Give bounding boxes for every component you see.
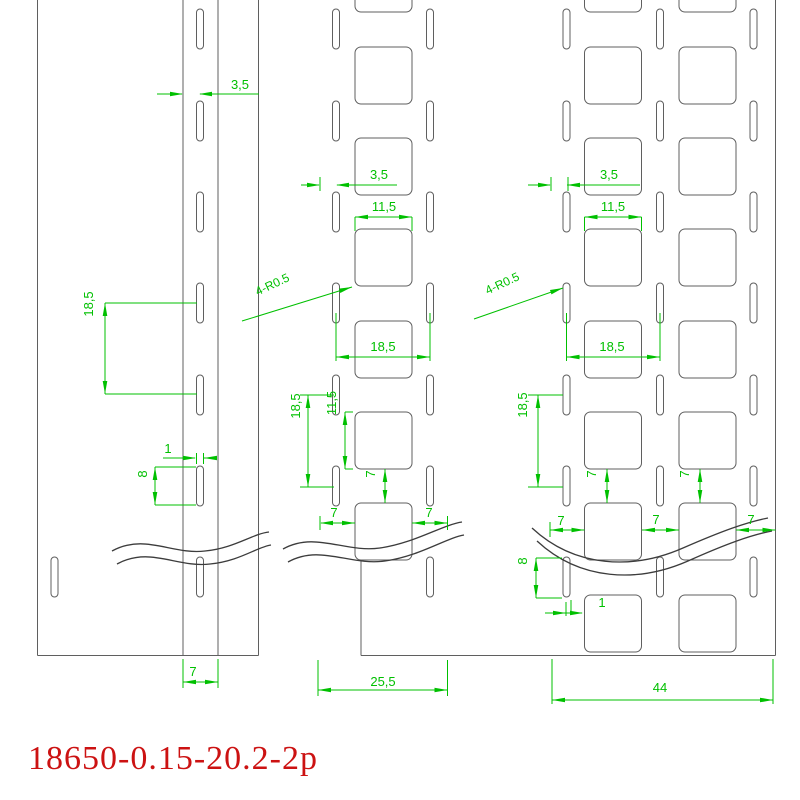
dim-arrowhead	[306, 395, 311, 408]
dim-label-right-square-width: 11,5	[601, 199, 625, 214]
slot-hole	[333, 9, 340, 49]
dim-arrowhead	[183, 456, 196, 461]
square-hole	[585, 0, 642, 12]
dim-label-right-slot-height: 8	[515, 557, 530, 564]
dim-arrowhead	[320, 521, 333, 526]
dim-label-mid-margin-right: 7	[425, 505, 432, 520]
dim-arrowhead	[642, 528, 655, 533]
dim-arrowhead	[570, 611, 583, 616]
dim-arrowhead	[336, 183, 349, 188]
slot-hole	[333, 466, 340, 506]
dim-label-mid-square-gap: 7	[363, 470, 378, 477]
dim-label-left-slot-width: 1	[164, 441, 171, 456]
dim-label-left-slot-height: 8	[135, 470, 150, 477]
slot-hole	[750, 101, 757, 141]
slot-hole	[197, 375, 204, 415]
dim-arrowhead	[339, 287, 352, 293]
dim-arrowhead	[204, 456, 217, 461]
square-hole	[585, 412, 642, 469]
dim-arrowhead	[538, 183, 551, 188]
dim-label-mid-strip-width: 25,5	[370, 674, 395, 689]
dim-arrowhead	[585, 215, 598, 220]
dim-arrowhead	[550, 528, 563, 533]
dim-arrowhead	[698, 469, 703, 482]
dim-arrowhead	[534, 585, 539, 598]
dim-arrowhead	[435, 688, 448, 693]
dim-arrowhead	[170, 92, 183, 97]
dim-arrowhead	[536, 395, 541, 408]
dim-label-right-slot-gap: 1	[598, 595, 605, 610]
dim-arrowhead	[307, 183, 320, 188]
dim-arrowhead	[355, 215, 368, 220]
dim-arrowhead	[435, 521, 448, 526]
slot-hole	[563, 9, 570, 49]
slot-hole	[750, 557, 757, 597]
slot-hole	[427, 192, 434, 232]
slot-hole	[427, 557, 434, 597]
slot-hole	[563, 192, 570, 232]
dim-label-right-margin-2: 7	[652, 512, 659, 527]
dim-label-right-slot-pitch-h: 18,5	[599, 339, 624, 354]
slot-hole	[197, 557, 204, 597]
dim-arrowhead	[103, 381, 108, 394]
square-hole	[585, 229, 642, 286]
slot-hole	[51, 557, 58, 597]
dim-arrowhead	[103, 303, 108, 316]
dim-label-right-pitch-v: 18,5	[515, 392, 530, 417]
dim-label-left-fold-width: 7	[189, 664, 196, 679]
slot-hole	[427, 101, 434, 141]
dim-label-right-square-gap-1: 7	[584, 470, 599, 477]
slot-hole	[750, 192, 757, 232]
square-hole	[679, 321, 736, 378]
dim-label-mid-square-width: 11,5	[372, 199, 396, 214]
dim-arrowhead	[550, 288, 563, 294]
slot-hole	[657, 557, 664, 597]
square-hole	[355, 0, 412, 12]
break-wave	[117, 545, 271, 564]
dim-arrowhead	[567, 183, 580, 188]
dim-arrowhead	[760, 698, 773, 703]
drawing-title: 18650-0.15-20.2-2p	[28, 740, 318, 778]
dim-label-right-margin-3: 7	[747, 512, 754, 527]
dim-arrowhead	[536, 474, 541, 487]
square-hole	[679, 412, 736, 469]
slot-hole	[427, 375, 434, 415]
punched-holes	[51, 0, 757, 652]
slot-hole	[333, 192, 340, 232]
slot-hole	[427, 466, 434, 506]
slot-hole	[197, 192, 204, 232]
dim-label-right-square-gap-2: 7	[677, 470, 692, 477]
dim-arrowhead	[183, 680, 196, 685]
cad-drawing-canvas: 3,518,51873,511,54-R0.518,518,511,577725…	[0, 0, 800, 800]
dim-arrowhead	[567, 355, 580, 360]
slot-hole	[333, 101, 340, 141]
dim-arrowhead	[552, 698, 565, 703]
break-wave	[112, 532, 269, 551]
slot-hole	[657, 375, 664, 415]
dim-arrowhead	[417, 355, 430, 360]
dim-arrowhead	[629, 215, 642, 220]
dim-arrowhead	[318, 688, 331, 693]
slot-hole	[657, 9, 664, 49]
dim-arrowhead	[383, 490, 388, 503]
square-hole	[355, 47, 412, 104]
dim-label-mid-slot-pitch-h: 18,5	[370, 339, 395, 354]
dim-label-mid-slot-offset: 3,5	[370, 167, 388, 182]
dim-arrowhead	[412, 521, 425, 526]
slot-hole	[750, 9, 757, 49]
dim-label-mid-margin-left: 7	[330, 505, 337, 520]
dim-arrowhead	[383, 469, 388, 482]
cad-drawing-page: 3,518,51873,511,54-R0.518,518,511,577725…	[0, 0, 800, 800]
dim-label-right-margin-1: 7	[557, 513, 564, 528]
square-hole	[679, 503, 736, 560]
dim-label-right-strip-width: 44	[653, 680, 667, 695]
slot-hole	[657, 101, 664, 141]
dim-arrowhead	[153, 492, 158, 505]
dim-arrowhead	[199, 92, 212, 97]
slot-hole	[427, 9, 434, 49]
dim-arrowhead	[647, 355, 660, 360]
slot-hole	[657, 192, 664, 232]
square-hole	[355, 503, 412, 560]
dim-arrowhead	[698, 490, 703, 503]
slot-hole	[197, 9, 204, 49]
dim-arrowhead	[336, 355, 349, 360]
dim-arrowhead	[572, 528, 585, 533]
square-hole	[585, 503, 642, 560]
dim-arrowhead	[666, 528, 679, 533]
dim-label-right-corner-radius: 4-R0.5	[483, 269, 522, 297]
dim-arrowhead	[605, 469, 610, 482]
dim-label-left-pitch: 18,5	[81, 291, 96, 316]
slot-hole	[750, 283, 757, 323]
dim-label-mid-pitch-v: 18,5	[288, 393, 303, 418]
slot-hole	[197, 101, 204, 141]
slot-hole	[657, 466, 664, 506]
dim-arrowhead	[153, 467, 158, 480]
dim-arrowhead	[553, 611, 566, 616]
square-hole	[679, 595, 736, 652]
dim-arrowhead	[605, 490, 610, 503]
dim-arrowhead	[534, 558, 539, 571]
dim-label-right-slot-offset: 3,5	[600, 167, 618, 182]
square-hole	[679, 47, 736, 104]
square-hole	[679, 0, 736, 12]
dim-arrowhead	[343, 456, 348, 469]
square-hole	[585, 595, 642, 652]
square-hole	[679, 138, 736, 195]
dim-label-left-slot-offset: 3,5	[231, 77, 249, 92]
dim-arrowhead	[205, 680, 218, 685]
square-hole	[679, 229, 736, 286]
slot-hole	[563, 101, 570, 141]
square-hole	[355, 229, 412, 286]
slot-hole	[563, 375, 570, 415]
dim-label-mid-square-height: 11,5	[324, 391, 339, 415]
dim-arrowhead	[306, 474, 311, 487]
break-wave-lines	[112, 518, 772, 575]
slot-hole	[197, 283, 204, 323]
slot-hole	[750, 375, 757, 415]
dim-arrowhead	[343, 412, 348, 425]
square-hole	[355, 412, 412, 469]
dim-arrowhead	[399, 215, 412, 220]
square-hole	[585, 47, 642, 104]
slot-hole	[197, 466, 204, 506]
slot-hole	[750, 466, 757, 506]
dim-arrowhead	[342, 521, 355, 526]
slot-hole	[563, 466, 570, 506]
dim-arrowhead	[736, 528, 749, 533]
